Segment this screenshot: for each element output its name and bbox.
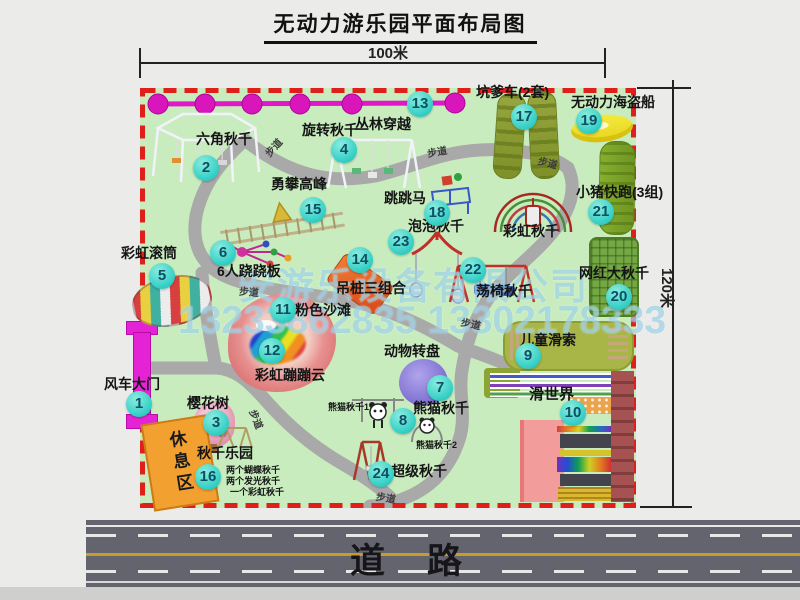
badge-3: 3 <box>203 410 229 436</box>
badge-1: 1 <box>126 391 152 417</box>
label-chair-swing: 荡椅秋千 <box>476 284 532 299</box>
sidewalk-strip <box>0 587 800 600</box>
page-title: 无动力游乐园平面布局图 <box>264 8 537 44</box>
badge-13: 13 <box>407 91 433 117</box>
label-cherry-tree: 樱花树 <box>187 396 229 411</box>
label-rainbow-cloud: 彩虹蹦蹦云 <box>255 368 325 383</box>
badge-8: 8 <box>390 408 416 434</box>
slide-lane-yellow-wavy <box>558 487 611 501</box>
badge-23: 23 <box>388 229 414 255</box>
badge-24: 24 <box>368 461 394 487</box>
label-climbing-peak: 勇攀高峰 <box>271 177 327 192</box>
label-rainbow-swing: 彩虹秋千 <box>503 224 559 239</box>
badge-4: 4 <box>331 137 357 163</box>
trail-label-7: 步道 <box>375 488 397 506</box>
badge-6: 6 <box>210 240 236 266</box>
width-dim-tick-right <box>604 48 606 78</box>
badge-15: 15 <box>300 197 326 223</box>
label-jungle-crossing: 丛林穿越 <box>355 117 411 132</box>
label-swing-park-note-1: 两个蝴蝶秋千 <box>226 466 280 476</box>
slide-lane-dark-2 <box>560 474 611 486</box>
label-panda-swing-1: 熊猫秋千1 <box>328 403 369 413</box>
label-super-swing: 超级秋千 <box>391 464 447 479</box>
width-dimension-label: 100米 <box>368 42 408 63</box>
badge-2: 2 <box>193 155 219 181</box>
badge-16: 16 <box>195 464 221 490</box>
slide-lane-rainbow-wide <box>557 457 611 472</box>
badge-21: 21 <box>588 199 614 225</box>
label-six-person-seesaw: 6人跷跷板 <box>217 264 281 279</box>
label-pit-carts: 坑爹车(2套) <box>476 85 549 100</box>
label-swing-park-note-3: 一个彩虹秋千 <box>230 488 284 498</box>
label-pink-beach: 粉色沙滩 <box>295 303 351 318</box>
height-dimension-label: 120米 <box>657 268 678 308</box>
badge-22: 22 <box>460 257 486 283</box>
label-hexagon-swing: 六角秋千 <box>196 132 252 147</box>
badge-5: 5 <box>149 263 175 289</box>
park-layout-diagram: 无动力游乐园平面布局图 100米 120米 <box>0 0 800 600</box>
zipline-lane-blue <box>490 373 614 380</box>
road-label: 道路 <box>350 533 504 584</box>
badge-11: 11 <box>270 297 296 323</box>
label-big-net-swing: 网红大秋千 <box>579 266 649 281</box>
label-rainbow-roller: 彩虹滚筒 <box>121 246 177 261</box>
slide-lane-rainbow-thin <box>557 426 611 432</box>
badge-7: 7 <box>427 375 453 401</box>
title-wrap: 无动力游乐园平面布局图 <box>0 8 800 44</box>
slide-lane-yellow <box>560 450 611 456</box>
label-panda-swing-2: 熊猫秋千2 <box>416 441 457 451</box>
watermark-phone: 13233862835 13302178333 <box>178 299 666 343</box>
badge-20: 20 <box>606 284 632 310</box>
trail-label-4: 步道 <box>239 283 260 299</box>
slide-lane-dark-1 <box>560 434 611 448</box>
slide-world-maroon-wall <box>611 371 634 502</box>
height-dim-tick-top <box>637 87 691 89</box>
label-rotating-swing: 旋转秋千 <box>302 123 358 138</box>
width-dim-tick-left <box>139 48 141 78</box>
label-animal-carousel: 动物转盘 <box>384 344 440 359</box>
label-swing-park: 秋千乐园 <box>197 446 253 461</box>
badge-18: 18 <box>424 200 450 226</box>
badge-17: 17 <box>511 104 537 130</box>
label-windmill-gate: 风车大门 <box>104 377 160 392</box>
height-dim-tick-bottom <box>640 506 692 508</box>
badge-14: 14 <box>347 247 373 273</box>
rest-area-label: 休息区 <box>162 428 197 497</box>
label-piggy-run: 小猪快跑(3组) <box>576 185 663 200</box>
label-jumping-horse: 跳跳马 <box>384 191 426 206</box>
badge-19: 19 <box>576 108 602 134</box>
badge-9: 9 <box>515 343 541 369</box>
label-panda-swing: 熊猫秋千 <box>413 401 469 416</box>
label-hanging-piles: 吊桩三组合 <box>336 281 406 296</box>
road-edge-line-top <box>86 525 800 527</box>
badge-12: 12 <box>259 338 285 364</box>
badge-10: 10 <box>560 400 586 426</box>
width-dimension-line <box>140 62 605 64</box>
label-swing-park-note-2: 两个发光秋千 <box>226 477 280 487</box>
